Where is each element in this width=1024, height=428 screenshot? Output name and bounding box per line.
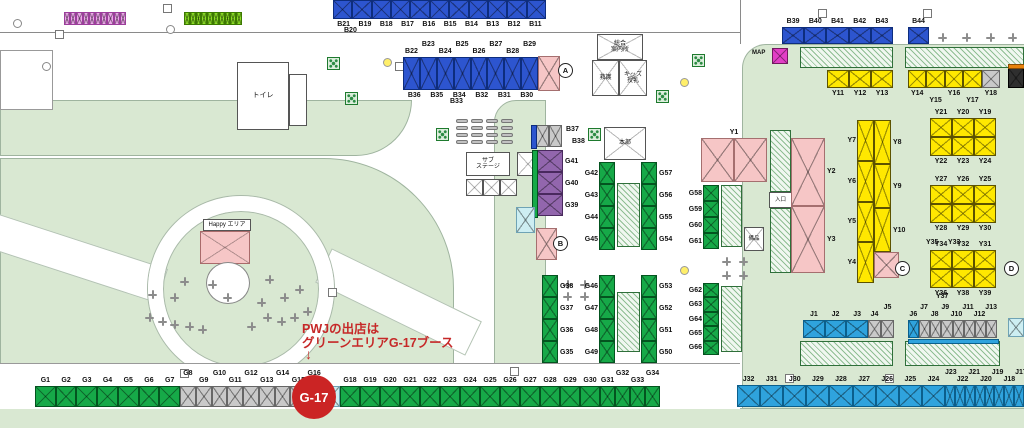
lamp-dot — [383, 58, 392, 67]
b-row-2 — [403, 57, 538, 90]
booth-G22 — [420, 386, 440, 407]
booth-label-G51: G51 — [659, 319, 677, 341]
booth-J13 — [986, 320, 997, 338]
booth-label-Y28: Y28 — [930, 225, 952, 233]
j-bottom-row-b-labels: J23J22J21J20J19J18J17J16 — [945, 376, 1024, 384]
booth-label-B16: B16 — [418, 21, 439, 29]
booth — [536, 125, 549, 147]
happy-area-label: Happy エリア — [208, 222, 245, 229]
info-center-label: 総合 案内所 — [597, 34, 643, 60]
happy-area-tent — [200, 231, 250, 264]
booth-B23 — [420, 57, 437, 90]
g53-50 — [641, 275, 657, 363]
booth-B22 — [403, 57, 420, 90]
booth-G64 — [703, 312, 719, 326]
hatch-center-1 — [617, 183, 640, 247]
booth-label-Y15: Y15 — [926, 97, 944, 105]
picnic-table-icon — [158, 317, 167, 326]
j1-3-labels: J1J2J3 — [803, 311, 868, 319]
lightcyan-booth-right — [1008, 318, 1024, 337]
j6-13 — [908, 320, 997, 338]
booth-G35 — [542, 341, 558, 363]
booth-G54 — [641, 228, 657, 250]
booth-G19 — [360, 386, 380, 407]
bench-icon — [456, 133, 468, 137]
booth-G34 — [645, 386, 660, 407]
booth-J28 — [829, 385, 852, 407]
booth-B15 — [430, 0, 449, 19]
booth-label-Y21: Y21 — [930, 109, 952, 117]
booth-Y22 — [930, 137, 952, 156]
booth-label-B18: B18 — [376, 21, 397, 29]
booth-label-B39: B39 — [782, 18, 804, 26]
bench-icon — [471, 133, 483, 137]
booth-label-G12: G12 — [243, 370, 259, 378]
planter-icon — [656, 90, 669, 103]
booth-B21 — [333, 0, 352, 19]
booth-label-G10: G10 — [212, 370, 228, 378]
booth-label-J7: J7 — [919, 304, 930, 312]
booth-label-J13: J13 — [985, 304, 997, 312]
venue-map: トイレ 総合 案内所 救護 キッズ 授乳 本部 サブ ステージ Happy エリ… — [0, 0, 1024, 428]
road-marker-square — [818, 9, 827, 18]
booth-label-G44: G44 — [580, 206, 598, 228]
hatch-center-4 — [721, 286, 742, 352]
booth-label-Y12: Y12 — [849, 90, 871, 98]
booth-label-Y27: Y27 — [930, 176, 952, 184]
area-marker-D: D — [1004, 261, 1019, 276]
booth-label-J3: J3 — [846, 311, 868, 319]
y1-block-labels: Y1 — [701, 129, 767, 137]
booth-G14 — [275, 386, 291, 407]
booth-label-J10: J10 — [951, 311, 963, 319]
g17-highlight-badge: G-17 — [292, 375, 336, 419]
booth-label-Y33: Y33 — [948, 239, 960, 246]
b44 — [908, 27, 929, 44]
booth-G48 — [599, 319, 615, 341]
booth-label-G46: G46 — [580, 275, 598, 297]
booth-J31 — [760, 385, 783, 407]
ground-dot — [166, 25, 175, 34]
booth-label-B33: B33 — [450, 98, 463, 105]
booth-label-G13: G13 — [259, 377, 275, 385]
planter-icon — [588, 128, 601, 141]
booth-J21 — [965, 385, 975, 407]
dark-booth — [1008, 68, 1024, 88]
booth-label-Y20: Y20 — [952, 109, 974, 117]
road-marker-square — [163, 4, 172, 13]
y-cluster1-bottom — [930, 137, 996, 156]
y7-y4-labels: Y7Y6Y5Y4 — [838, 120, 856, 283]
picnic-table-icon — [208, 280, 217, 289]
booth-label-J20: J20 — [980, 376, 992, 384]
booth-J9 — [941, 320, 952, 338]
booth-label-G11: G11 — [227, 377, 243, 385]
booth-J26 — [876, 385, 899, 407]
g58-61-labels: G58G59G60G61 — [684, 185, 702, 249]
picnic-table-icon — [198, 325, 207, 334]
area-marker-B: B — [553, 236, 568, 251]
booth-Y30 — [974, 204, 996, 223]
y14-18-labels: Y14Y15Y16Y17Y18 — [908, 90, 1000, 98]
picnic-table-icon — [938, 33, 947, 42]
road-marker-square — [55, 30, 64, 39]
y1-block — [701, 138, 767, 182]
booth-G45 — [599, 228, 615, 250]
booth-label-G37: G37 — [560, 297, 578, 319]
booth-label-G66: G66 — [684, 341, 702, 355]
g-row-1-7 — [35, 386, 180, 407]
g-row-18-30-labels: G18G19G20G21G22G23G24G25G26G27G28G29G30 — [340, 377, 600, 385]
bench-icon — [486, 140, 498, 144]
bench-icon — [486, 133, 498, 137]
booth-Y4 — [857, 242, 874, 283]
booth-G50 — [641, 341, 657, 363]
booth — [549, 125, 562, 147]
booth-G25 — [480, 386, 500, 407]
booth-label-J4: J4 — [868, 311, 881, 319]
booth-J16 — [1014, 385, 1024, 407]
booth-label-J23: J23 — [945, 369, 957, 377]
sub-stage-box: サブ ステージ — [466, 152, 510, 176]
b44-labels: B44 — [908, 18, 929, 26]
booth-label-J2: J2 — [825, 311, 847, 319]
booth-label-J5: J5 — [881, 304, 894, 312]
kids-nursing-label: キッズ 授乳 — [619, 60, 647, 96]
bench-icon — [456, 119, 468, 123]
toilet-building: トイレ — [237, 62, 289, 130]
g39-41 — [537, 150, 563, 216]
booth-label-B28: B28 — [504, 48, 521, 56]
booth-Y19 — [974, 118, 996, 137]
booth-label-Y1: Y1 — [701, 129, 767, 137]
booth-B24 — [437, 57, 454, 90]
booth-label-B25: B25 — [454, 41, 471, 49]
booth-label-J22: J22 — [957, 376, 969, 384]
booth-label-Y16: Y16 — [945, 90, 963, 98]
booth-label-Y5: Y5 — [838, 202, 856, 243]
g42-45 — [599, 162, 615, 250]
booth-J24 — [922, 385, 945, 407]
booth-label-G29: G29 — [560, 377, 580, 385]
y14-18 — [908, 70, 1000, 88]
booth-G56 — [641, 184, 657, 206]
booth-label-J24: J24 — [922, 376, 945, 384]
booth-G44 — [599, 206, 615, 228]
booth-label-Y13: Y13 — [871, 90, 893, 98]
booth-G38 — [542, 275, 558, 297]
booth-G9 — [196, 386, 212, 407]
planter-icon — [345, 92, 358, 105]
booth-label-Y6: Y6 — [838, 161, 856, 202]
booth-label-J30: J30 — [783, 376, 806, 384]
booth-Y15 — [926, 70, 944, 88]
booth-label-Y11: Y11 — [827, 90, 849, 98]
mini-green-row — [184, 12, 242, 25]
booth-label-B40: B40 — [804, 18, 826, 26]
booth-B42 — [849, 27, 871, 44]
booth-B18 — [372, 0, 391, 19]
booth-G18 — [340, 386, 360, 407]
y-cluster2-bottom-labels: Y28Y29Y30 — [930, 225, 996, 233]
booth-label-B29: B29 — [521, 41, 538, 49]
booth-J12 — [975, 320, 986, 338]
booth-label-B24: B24 — [437, 48, 454, 56]
picnic-table-icon — [986, 33, 995, 42]
picnic-table-icon — [295, 285, 304, 294]
booth-Y13 — [871, 70, 893, 88]
picnic-table-icon — [180, 277, 189, 286]
booth-label-G56: G56 — [659, 184, 677, 206]
bench-icon — [501, 140, 513, 144]
booth-J8 — [930, 320, 941, 338]
booth-label-Y31: Y31 — [974, 241, 996, 249]
annotation-arrow: ↓ — [305, 346, 312, 362]
building-topleft — [0, 50, 53, 110]
booth-label-G49: G49 — [580, 341, 598, 363]
b-row-top — [333, 0, 546, 19]
booth-J2 — [825, 320, 847, 338]
booth-G20 — [380, 386, 400, 407]
booth-G61 — [703, 233, 719, 249]
booth-B39 — [782, 27, 804, 44]
booth-label-J26: J26 — [876, 376, 899, 384]
g62-66 — [703, 283, 719, 355]
booth-G60 — [703, 217, 719, 233]
bench-icon — [486, 119, 498, 123]
ground-dot — [42, 62, 51, 71]
sub-stage-label: サブ ステージ — [476, 158, 500, 171]
hatch-topright-1 — [800, 47, 893, 68]
booth — [527, 0, 546, 19]
picnic-table-icon — [170, 320, 179, 329]
y-cluster1-top-labels: Y21Y20Y19 — [930, 109, 996, 117]
j6-13-underbar — [908, 339, 999, 344]
booth-label-G54: G54 — [659, 228, 677, 250]
booth-label-G27: G27 — [520, 377, 540, 385]
booth — [120, 12, 126, 25]
picnic-table-icon — [290, 313, 299, 322]
y7-y4 — [857, 120, 874, 283]
y-cluster2-top-labels: Y27Y26Y25 — [930, 176, 996, 184]
booth-Y9 — [874, 164, 891, 208]
booth-label-J12: J12 — [974, 311, 986, 319]
booth-Y1 — [701, 138, 734, 182]
booth — [734, 138, 767, 182]
booth-label-J29: J29 — [806, 376, 829, 384]
booth-label-B30: B30 — [516, 92, 539, 100]
sub-stage-tent-1 — [466, 179, 483, 196]
booth-G8 — [180, 386, 196, 407]
hatch-center-2 — [617, 292, 640, 352]
booth-G46 — [599, 275, 615, 297]
booth-Y11 — [827, 70, 849, 88]
hatch-center-3 — [721, 185, 742, 247]
booth-label-G60: G60 — [684, 217, 702, 233]
booth-G29 — [560, 386, 580, 407]
bench-icon — [456, 140, 468, 144]
booth-Y32 — [952, 250, 974, 269]
booth-label-J6: J6 — [908, 311, 919, 319]
booth — [772, 48, 788, 64]
hatch-j2 — [905, 341, 1000, 366]
booth-G30 — [580, 386, 600, 407]
booth-G23 — [440, 386, 460, 407]
g57-54-labels: G57G56G55G54 — [659, 162, 677, 250]
booth-G58 — [703, 185, 719, 201]
booth-J4 — [868, 320, 881, 338]
j1-3 — [803, 320, 868, 338]
planter-icon — [436, 128, 449, 141]
booth — [516, 207, 535, 233]
booth-G12 — [243, 386, 259, 407]
booth-label-B26: B26 — [471, 48, 488, 56]
booth-G47 — [599, 297, 615, 319]
booth-Y8 — [874, 120, 891, 164]
booth-Y36 — [930, 269, 952, 288]
booth-Y10 — [874, 208, 891, 252]
bench-icon — [501, 133, 513, 137]
j-bottom-row-a-labels: J32J31J30J29J28J27J26J25J24 — [737, 376, 945, 384]
booth-G4 — [97, 386, 118, 407]
mini-pink-row — [64, 12, 126, 25]
ground-dot — [13, 19, 22, 28]
y11-13-labels: Y11Y12Y13 — [827, 90, 893, 98]
booth-label-B13: B13 — [482, 21, 503, 29]
booth-J30 — [783, 385, 806, 407]
g-row-31-34 — [600, 386, 660, 407]
bench-icon — [471, 119, 483, 123]
booth-Y34 — [930, 250, 952, 269]
booth-label-J9: J9 — [940, 304, 951, 312]
y2-y3 — [791, 138, 825, 273]
booth-label-G52: G52 — [659, 297, 677, 319]
g17-badge-label: G-17 — [300, 390, 329, 405]
booth-G37 — [542, 297, 558, 319]
booth-B16 — [410, 0, 429, 19]
booth-G57 — [641, 162, 657, 184]
booth-label-Y19: Y19 — [974, 109, 996, 117]
booth-label-J18: J18 — [1003, 376, 1015, 384]
booth-G27 — [520, 386, 540, 407]
j4-5-labels: J4J5 — [868, 311, 894, 319]
booth-G28 — [540, 386, 560, 407]
y-cluster1-bottom-labels: Y22Y23Y24 — [930, 158, 996, 166]
booth-label-G14: G14 — [275, 370, 291, 378]
booth-label-J19: J19 — [992, 369, 1004, 377]
picnic-table-icon — [223, 293, 232, 302]
booth-B19 — [352, 0, 371, 19]
booth-Y25 — [974, 185, 996, 204]
booth-label-G22: G22 — [420, 377, 440, 385]
booth-label-Y8: Y8 — [893, 120, 911, 164]
booth-label-G36: G36 — [560, 319, 578, 341]
g62-66-labels: G62G63G64G65G66 — [684, 283, 702, 355]
booth-Y17 — [963, 70, 981, 88]
planter-icon — [327, 57, 340, 70]
booth-label-G7: G7 — [159, 377, 180, 385]
j6-13-labels: J6J7J8J9J10J11J12J13 — [908, 311, 997, 319]
picnic-table-icon — [962, 33, 971, 42]
booth-G66 — [703, 341, 719, 355]
booth-G2 — [56, 386, 77, 407]
booth-label-G55: G55 — [659, 206, 677, 228]
booth-label-B43: B43 — [871, 18, 893, 26]
booth-G63 — [703, 297, 719, 311]
booth-B26 — [471, 57, 488, 90]
dark-booth-sidebar — [1008, 64, 1024, 69]
booth-label-G25: G25 — [480, 377, 500, 385]
booth-label-B42: B42 — [849, 18, 871, 26]
booth-label-G38: G38 — [560, 275, 578, 297]
sub-stage-tent-2 — [483, 179, 500, 196]
picnic-table-icon — [265, 275, 274, 284]
booth-B27 — [487, 57, 504, 90]
booth-J22 — [955, 385, 965, 407]
booth-G41 — [537, 150, 563, 172]
booth-label-B36: B36 — [403, 92, 426, 100]
map-marker-label: MAP — [752, 50, 765, 56]
booth-J23 — [945, 385, 955, 407]
booth — [538, 56, 560, 91]
booth-Y16 — [945, 70, 963, 88]
booth-G53 — [641, 275, 657, 297]
booth-label-B22: B22 — [403, 48, 420, 56]
b39-43 — [782, 27, 893, 44]
booth-label-G43: G43 — [580, 184, 598, 206]
area-marker-A: A — [558, 63, 573, 78]
toilet-annex — [289, 74, 307, 126]
picnic-table-icon — [263, 313, 272, 322]
booth-label-Y25: Y25 — [974, 176, 996, 184]
g53-50-labels: G53G52G51G50 — [659, 275, 677, 363]
booth-J1 — [803, 320, 825, 338]
booth-B43 — [871, 27, 893, 44]
booth-label-J25: J25 — [899, 376, 922, 384]
j-bottom-row-b — [945, 385, 1024, 407]
booth-G13 — [259, 386, 275, 407]
booth-label-G35: G35 — [560, 341, 578, 363]
booth-G32 — [615, 386, 630, 407]
booth-J3 — [846, 320, 868, 338]
booth-B25 — [454, 57, 471, 90]
booth-label-G63: G63 — [684, 297, 702, 311]
booth-Y38 — [952, 269, 974, 288]
booth-Y20 — [952, 118, 974, 137]
sub-stage-tent-3 — [500, 179, 517, 196]
booth-label-G64: G64 — [684, 312, 702, 326]
bench-icon — [486, 126, 498, 130]
booth-J32 — [737, 385, 760, 407]
entrance-box: 入口 — [769, 192, 792, 208]
booth-B41 — [826, 27, 848, 44]
y11-13 — [827, 70, 893, 88]
picnic-table-icon — [722, 257, 731, 266]
booth-label-G9: G9 — [196, 377, 212, 385]
booth-label-G58: G58 — [684, 185, 702, 201]
booth-Y14 — [908, 70, 926, 88]
g58-61 — [703, 185, 719, 249]
booth-label-Y14: Y14 — [908, 90, 926, 98]
booth-label-G8: G8 — [180, 370, 196, 378]
booth-Y39 — [974, 269, 996, 288]
booth-Y21 — [930, 118, 952, 137]
first-aid-label: 救護 — [592, 60, 619, 96]
g-row-18-30 — [340, 386, 600, 407]
booth-J7 — [919, 320, 930, 338]
picnic-table-icon — [185, 322, 194, 331]
booth-label-G3: G3 — [76, 377, 97, 385]
